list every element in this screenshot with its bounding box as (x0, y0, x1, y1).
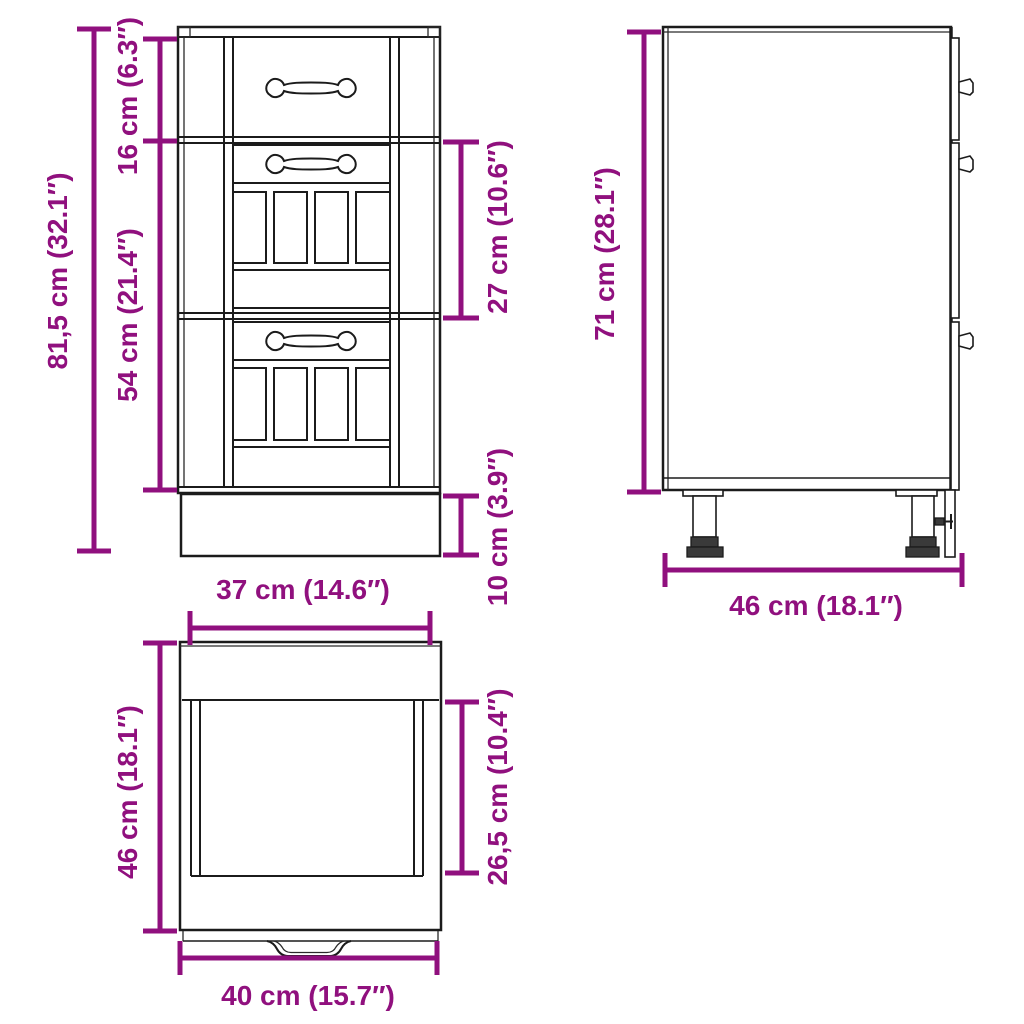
dim-side-height (627, 32, 661, 492)
dim-top-depth (143, 643, 177, 931)
dimension-diagram: 81,5 cm (32.1″) 16 cm (6.3″) 54 cm (21.4… (0, 0, 1024, 1024)
side-drawer-edge-1 (951, 38, 959, 140)
dimension-lines (77, 29, 962, 975)
corner-cap-right (428, 27, 440, 37)
dim-label-middle-drawer-height: 27 cm (10.6″) (482, 140, 513, 314)
dim-front-sections (143, 39, 177, 490)
dim-label-top-depth: 46 cm (18.1″) (112, 705, 143, 879)
handle-side-profile-1 (959, 79, 973, 95)
dim-label-top-inner-depth: 26,5 cm (10.4″) (482, 688, 513, 885)
dim-plinth (443, 496, 479, 555)
dim-label-side-depth: 46 cm (18.1″) (729, 590, 903, 621)
dim-label-top-width: 40 cm (15.7″) (221, 980, 395, 1011)
dim-top-width (180, 941, 437, 975)
handle-side-profile-3 (959, 333, 973, 349)
dim-label-top-drawer-height: 16 cm (6.3″) (112, 17, 143, 175)
dimension-labels: 81,5 cm (32.1″) 16 cm (6.3″) 54 cm (21.4… (42, 17, 903, 1011)
dim-label-plinth-height: 10 cm (3.9″) (482, 448, 513, 606)
corner-cap-left (178, 27, 190, 37)
bottom-drawer-handle (266, 332, 356, 350)
side-view (663, 27, 973, 557)
leveling-screw (935, 514, 953, 529)
adjustable-foot-left (683, 490, 723, 557)
dim-side-depth (665, 553, 962, 587)
handle-side-profile-2 (959, 156, 973, 172)
middle-drawer (233, 145, 390, 308)
side-drawer-edge-2 (951, 143, 959, 318)
bottom-drawer (233, 322, 390, 487)
side-drawer-edge-3 (951, 322, 959, 490)
dim-overall-height (77, 29, 111, 551)
dim-label-lower-front-height: 54 cm (21.4″) (112, 228, 143, 402)
top-view-handle (267, 941, 351, 956)
top-view (180, 642, 441, 956)
dim-middle-drawer (443, 142, 479, 318)
dim-label-overall-height: 81,5 cm (32.1″) (42, 172, 73, 369)
dim-top-inner-depth (445, 702, 479, 873)
front-view (178, 27, 440, 556)
plinth (181, 494, 440, 556)
middle-drawer-handle (266, 155, 356, 173)
dim-front-width (190, 611, 430, 645)
dim-label-side-height: 71 cm (28.1″) (589, 167, 620, 341)
dim-label-front-width: 37 cm (14.6″) (216, 574, 390, 605)
top-drawer-handle (266, 79, 356, 97)
